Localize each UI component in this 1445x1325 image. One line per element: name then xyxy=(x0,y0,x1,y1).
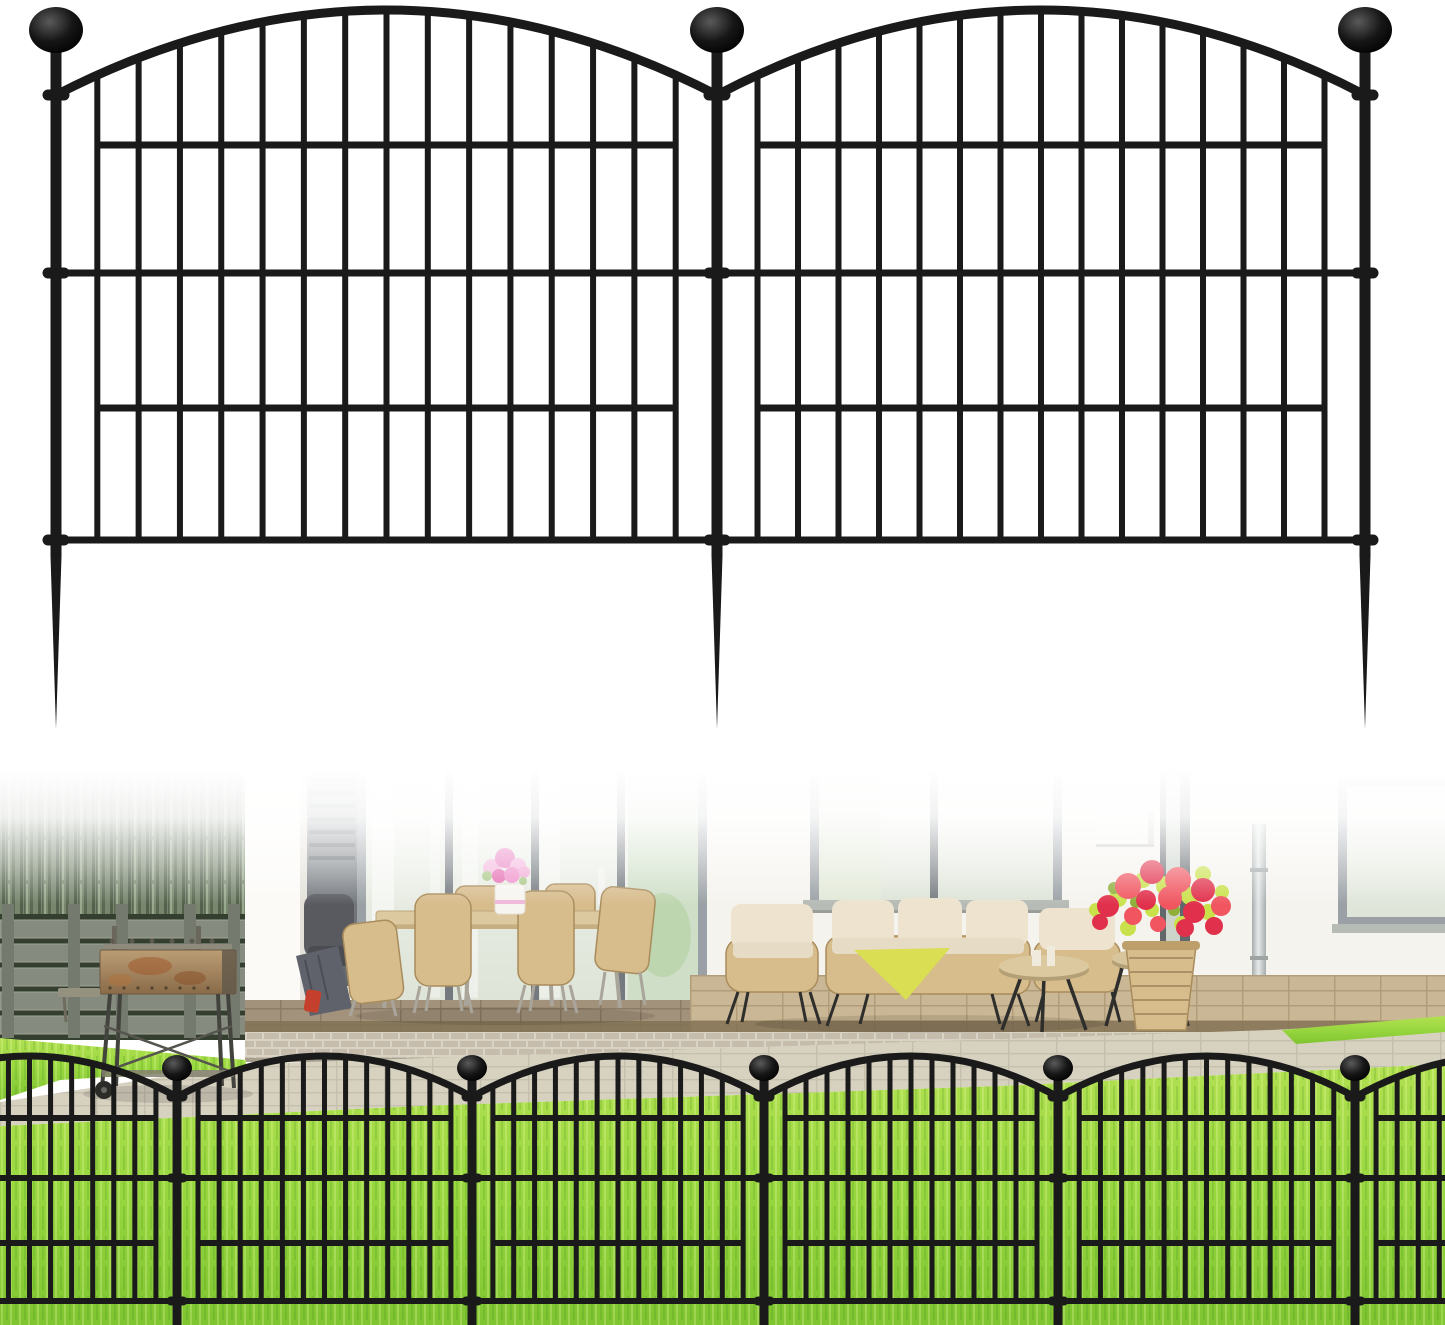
product-fence-panels xyxy=(29,7,1392,729)
candle xyxy=(1032,950,1041,966)
wicker-planter xyxy=(1122,941,1200,1030)
photo-top-fade xyxy=(0,770,1445,905)
product-image-canvas xyxy=(0,0,1445,1325)
dining-chair xyxy=(342,919,405,1005)
grill-side-shelf xyxy=(58,988,100,997)
installed-garden-fence xyxy=(0,1054,1445,1325)
composite-image xyxy=(0,0,1445,1325)
candle xyxy=(1047,946,1055,966)
